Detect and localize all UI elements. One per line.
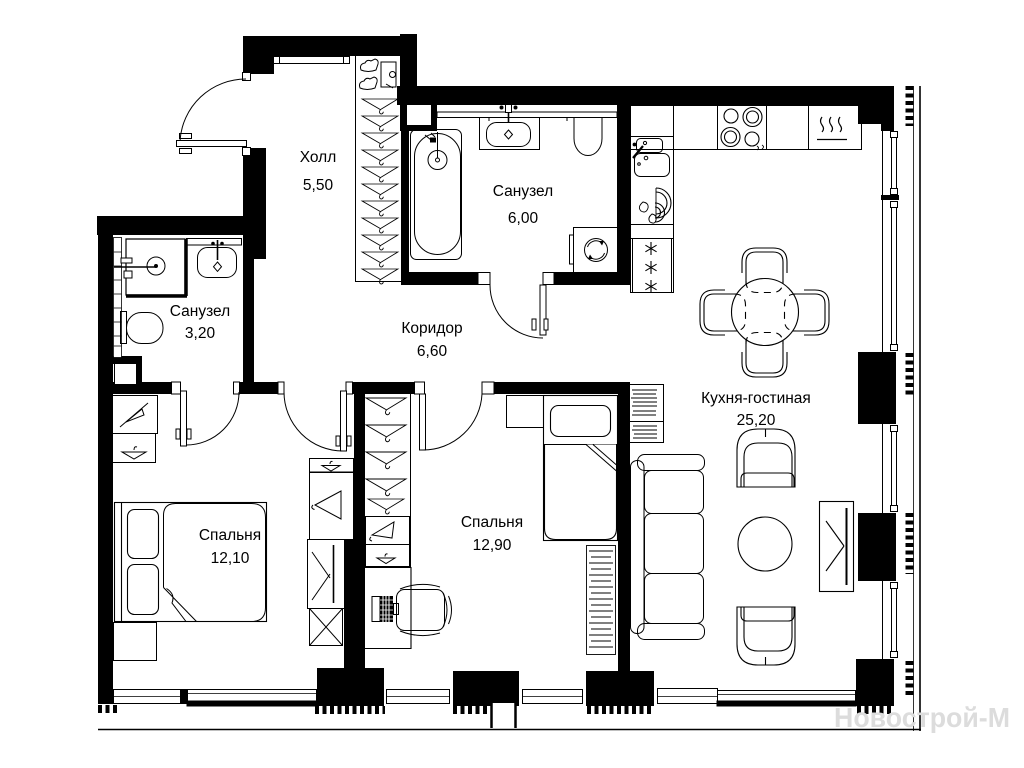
svg-text:Новострой-М: Новострой-М [834, 702, 1010, 733]
svg-text:12,90: 12,90 [473, 537, 512, 554]
svg-text:3,20: 3,20 [185, 325, 216, 342]
svg-text:Спальня: Спальня [461, 514, 523, 531]
svg-text:6,00: 6,00 [508, 210, 539, 227]
svg-text:6,60: 6,60 [417, 343, 448, 360]
svg-text:Санузел: Санузел [493, 183, 553, 200]
svg-text:Кухня-гостиная: Кухня-гостиная [701, 390, 811, 407]
svg-text:Санузел: Санузел [170, 303, 230, 320]
svg-text:12,10: 12,10 [211, 550, 250, 567]
svg-text:Спальня: Спальня [199, 527, 261, 544]
svg-text:5,50: 5,50 [303, 177, 334, 194]
svg-text:25,20: 25,20 [737, 412, 776, 429]
svg-text:Холл: Холл [300, 149, 337, 166]
svg-text:Коридор: Коридор [401, 320, 462, 337]
